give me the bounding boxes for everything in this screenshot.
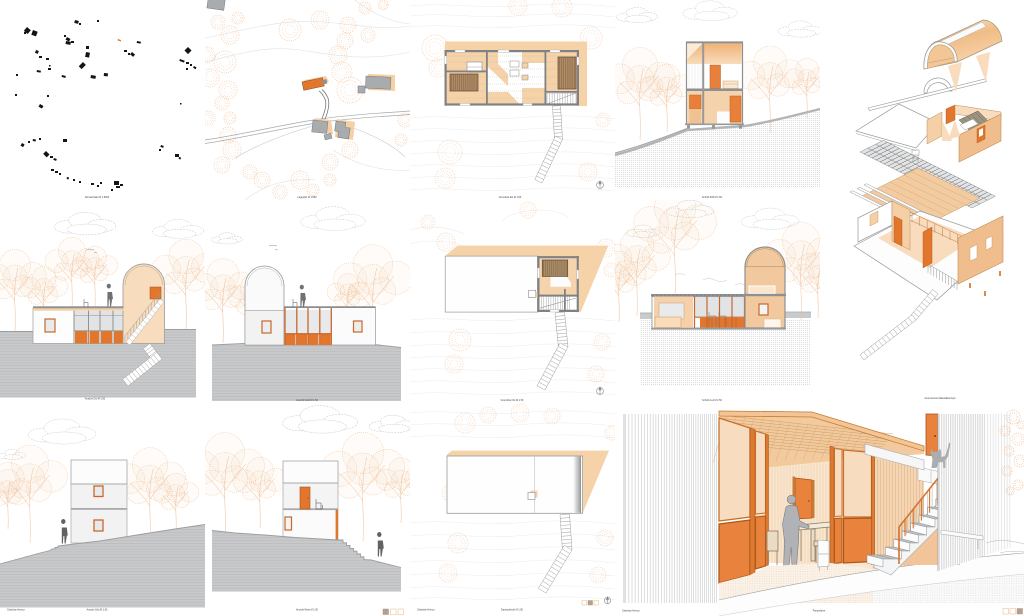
svg-text:Lageplan M 1:500: Lageplan M 1:500: [297, 196, 317, 199]
svg-text:Charlotte Heincz: Charlotte Heincz: [7, 609, 25, 612]
svg-text:Schnitt B-B M 1:50: Schnitt B-B M 1:50: [702, 196, 723, 199]
svg-text:Ansicht Süd M 1:50: Ansicht Süd M 1:50: [87, 609, 108, 612]
svg-text:Grundriss OG M 1:50: Grundriss OG M 1:50: [501, 399, 524, 402]
svg-text:Charlotte Heincz: Charlotte Heincz: [622, 610, 640, 613]
svg-text:Grundriss EG M 1:50: Grundriss EG M 1:50: [499, 196, 522, 199]
svg-text:Schnitt A-A M 1:50: Schnitt A-A M 1:50: [702, 399, 722, 402]
svg-text:Ansicht Ost M 1:50: Ansicht Ost M 1:50: [85, 398, 106, 401]
svg-text:Dachaufsicht M 1:50: Dachaufsicht M 1:50: [501, 609, 523, 612]
svg-text:Schwarzplan M 1:5000: Schwarzplan M 1:5000: [85, 196, 110, 199]
svg-text:Axonometrie Materialkonzept: Axonometrie Materialkonzept: [925, 397, 956, 400]
svg-text:Ansicht West M 1:50: Ansicht West M 1:50: [296, 609, 319, 612]
svg-text:Charlotte Heincz: Charlotte Heincz: [417, 609, 435, 612]
svg-text:Ansicht Nord M 1:50: Ansicht Nord M 1:50: [296, 399, 318, 402]
svg-text:Perspektive: Perspektive: [813, 610, 826, 613]
